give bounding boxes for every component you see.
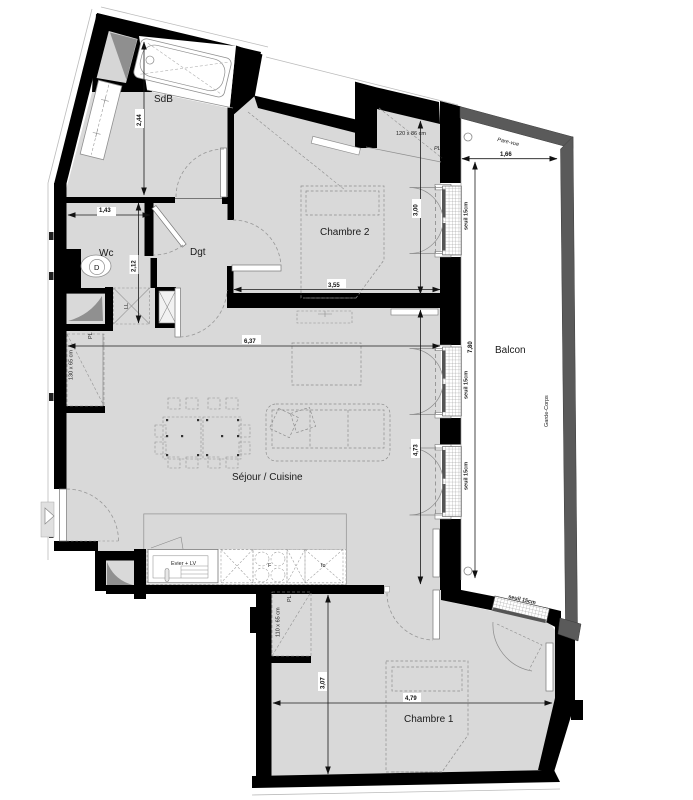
- svg-text:3,55: 3,55: [328, 283, 340, 289]
- svg-text:D: D: [94, 263, 100, 272]
- svg-text:seuil 15cm: seuil 15cm: [464, 371, 470, 399]
- svg-text:2,12: 2,12: [132, 260, 138, 272]
- svg-text:1,66: 1,66: [500, 152, 512, 158]
- svg-text:Chambre 2: Chambre 2: [320, 227, 370, 238]
- svg-text:Garde-Corps: Garde-Corps: [544, 395, 550, 427]
- svg-text:110 x 65 cm: 110 x 65 cm: [276, 607, 282, 637]
- svg-text:fo: fo: [321, 563, 326, 569]
- svg-text:Chambre 1: Chambre 1: [404, 714, 454, 725]
- svg-text:seuil 15cm: seuil 15cm: [464, 202, 470, 230]
- svg-text:4,73: 4,73: [414, 444, 420, 456]
- svg-text:6,37: 6,37: [244, 339, 256, 345]
- svg-text:seuil 15cm: seuil 15cm: [464, 462, 470, 490]
- svg-text:SdB: SdB: [154, 94, 173, 105]
- svg-text:PL: PL: [287, 595, 293, 602]
- svg-text:Wc: Wc: [99, 248, 113, 259]
- svg-text:LL: LL: [124, 303, 130, 309]
- svg-text:130 x 65 cm: 130 x 65 cm: [69, 350, 75, 380]
- svg-text:3,00: 3,00: [414, 204, 420, 216]
- svg-text:120 x 86 cm: 120 x 86 cm: [396, 131, 426, 137]
- svg-text:Dgt: Dgt: [190, 247, 206, 258]
- svg-text:PL: PL: [88, 332, 94, 339]
- svg-text:2,44: 2,44: [137, 114, 143, 126]
- svg-text:7,80: 7,80: [468, 341, 474, 353]
- svg-text:Balcon: Balcon: [495, 345, 526, 356]
- svg-text:Séjour / Cuisine: Séjour / Cuisine: [232, 472, 303, 483]
- svg-text:1,43: 1,43: [99, 208, 111, 214]
- svg-text:3,07: 3,07: [321, 677, 327, 689]
- svg-text:PL: PL: [434, 146, 441, 152]
- svg-text:4,79: 4,79: [405, 696, 417, 702]
